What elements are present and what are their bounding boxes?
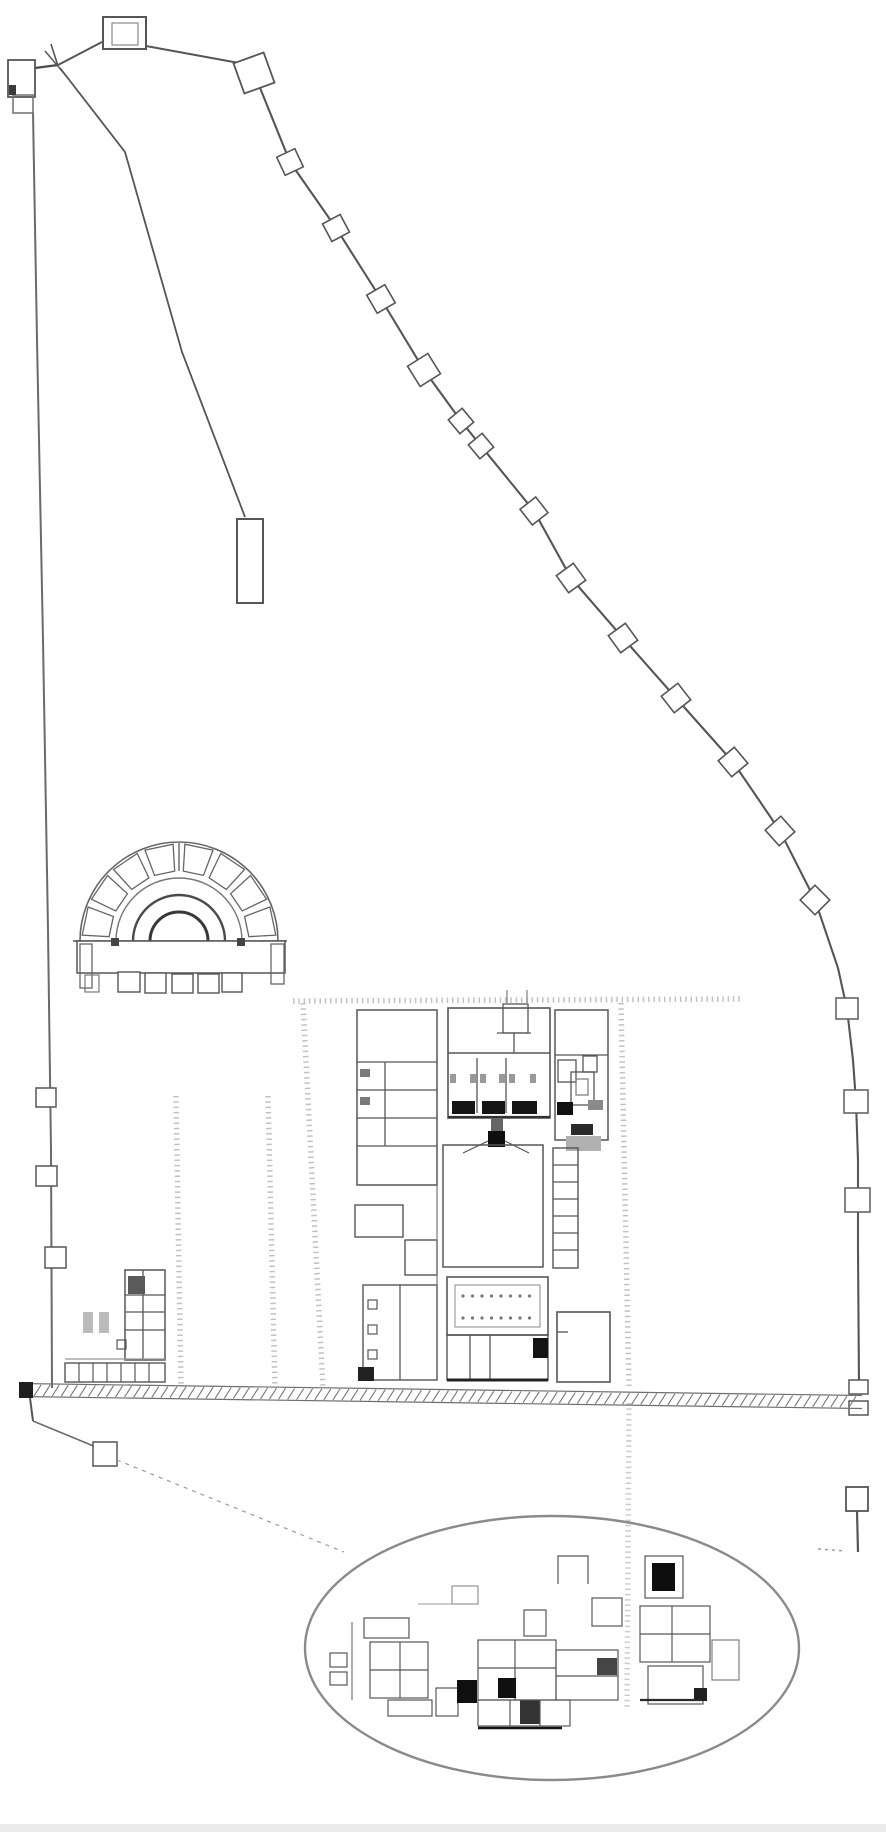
road-hatch-tick	[704, 1394, 711, 1405]
central-complex-shape	[405, 1240, 437, 1275]
central-complex-shape	[571, 1124, 593, 1135]
road-hatch-tick	[831, 1396, 838, 1407]
detail-inset-shape	[652, 1563, 675, 1591]
northeast-city-wall	[254, 73, 859, 1385]
theatre-radial-chambers	[91, 876, 127, 911]
city-wall-shape	[35, 65, 58, 68]
wall-towers-shape	[765, 816, 795, 846]
wall-towers-shape	[520, 497, 548, 525]
detail-inset-shape	[330, 1672, 347, 1685]
pool-dot	[461, 1316, 464, 1319]
detail-inset-shape	[597, 1658, 617, 1675]
central-complex-shape	[368, 1325, 377, 1334]
road-hatch-tick	[487, 1391, 494, 1402]
road-hatch-tick	[288, 1388, 295, 1399]
road-hatch-tick	[215, 1387, 222, 1398]
road-hatch-tick	[722, 1395, 729, 1406]
road-hatch-tick	[758, 1395, 765, 1406]
inner-wall	[60, 68, 263, 603]
north-south-street	[621, 1003, 629, 1388]
road-hatch-tick	[451, 1391, 458, 1402]
wall-towers-shape	[408, 354, 441, 387]
north-south-street-extension	[627, 1403, 629, 1710]
pool-dot	[499, 1294, 502, 1297]
theatre	[73, 842, 287, 993]
site-plan-svg	[0, 0, 886, 1835]
road-hatch-tick	[52, 1385, 59, 1396]
detail-inset-shape	[712, 1640, 739, 1680]
road-hatch-tick	[786, 1396, 793, 1407]
road-hatch-tick	[840, 1396, 847, 1407]
road-hatch-tick	[324, 1389, 331, 1400]
road-hatch-tick	[532, 1392, 539, 1403]
theatre-shape	[198, 974, 219, 993]
road-hatch-tick	[125, 1386, 132, 1397]
portico-row	[65, 1363, 165, 1382]
southeast-tower	[846, 1487, 868, 1511]
road-hatch-tick	[777, 1395, 784, 1406]
detail-inset	[305, 1516, 799, 1780]
central-complex-shape	[499, 1074, 505, 1083]
road-hatch-tick	[586, 1393, 593, 1404]
road-hatch-tick	[116, 1386, 123, 1397]
theatre-radial-chambers	[245, 907, 276, 937]
road-hatch-tick	[369, 1390, 376, 1401]
wall-towers-shape	[367, 285, 396, 314]
road-hatch-tick	[261, 1388, 268, 1399]
south-rooms	[447, 1335, 548, 1380]
detail-inset-shape	[364, 1618, 409, 1638]
road-hatch-tick	[34, 1385, 41, 1396]
wall-towers-shape	[448, 408, 473, 433]
city-wall-shape	[146, 46, 239, 63]
wall-towers-shape	[800, 885, 830, 915]
pool-hall	[447, 1277, 548, 1335]
pillar	[99, 1312, 109, 1333]
inner-diagonal-wall	[60, 68, 245, 517]
pool-dot	[499, 1316, 502, 1319]
pool-dot	[471, 1316, 474, 1319]
central-complex-shape	[505, 1141, 529, 1153]
central-complex-shape	[588, 1100, 603, 1110]
road-hatch-tick	[224, 1388, 231, 1399]
west-wall-tower	[36, 1088, 56, 1107]
west-city-wall	[33, 112, 52, 1388]
road-hatch-tick	[433, 1390, 440, 1401]
theatre-shape	[145, 973, 166, 993]
road-hatch-tick	[659, 1394, 666, 1405]
southwest-tower	[93, 1442, 117, 1466]
road-hatch-tick	[740, 1395, 747, 1406]
theatre-cavea-arc	[133, 895, 225, 941]
central-complex-shape	[355, 1205, 403, 1237]
pool-dot	[461, 1294, 464, 1297]
city-wall-shape	[30, 1398, 33, 1421]
theatre-radial-chambers	[82, 907, 113, 937]
road-hatch-tick	[197, 1387, 204, 1398]
theatre-shape	[118, 972, 140, 992]
road-hatch-tick	[170, 1387, 177, 1398]
road-hatch-tick	[804, 1396, 811, 1407]
doorway-black	[452, 1101, 475, 1114]
central-complex-shape	[360, 1097, 370, 1105]
central-complex	[355, 990, 610, 1382]
detail-inset-shape	[457, 1680, 477, 1703]
road-hatch-tick	[514, 1392, 521, 1403]
peristyle-courtyard	[443, 1145, 543, 1267]
doorway-black	[482, 1101, 505, 1114]
north-gate-tower	[103, 17, 146, 49]
detail-inset-shape	[330, 1653, 347, 1667]
theatre-orchestra	[150, 912, 208, 941]
city-wall-shape	[9, 85, 16, 95]
theatre-radial-chambers	[231, 876, 267, 911]
north-south-street	[303, 1003, 323, 1388]
scan-artifacts-shape	[0, 1824, 886, 1832]
central-complex-shape	[463, 1141, 488, 1153]
central-complex-shape	[557, 1102, 573, 1115]
paved-road-shape	[19, 1382, 33, 1398]
central-complex-shape	[368, 1350, 377, 1359]
central-complex-shape	[558, 1060, 576, 1082]
doorway-black	[512, 1101, 537, 1114]
road-hatch-tick	[496, 1391, 503, 1402]
paved-road-band	[20, 1384, 862, 1396]
road-hatch-tick	[768, 1395, 775, 1406]
road-hatch-tick	[306, 1389, 313, 1400]
road-hatch-tick	[333, 1389, 340, 1400]
road-hatch-tick	[161, 1387, 168, 1398]
central-complex-shape	[480, 1074, 486, 1083]
theatre-radial-chambers	[145, 844, 175, 875]
pool-dot	[471, 1294, 474, 1297]
road-hatch-tick	[315, 1389, 322, 1400]
road-hatch-tick	[677, 1394, 684, 1405]
road-hatch-tick	[188, 1387, 195, 1398]
central-complex-shape	[368, 1300, 377, 1309]
road-hatch-tick	[822, 1396, 829, 1407]
road-hatch-tick	[396, 1390, 403, 1401]
road-hatch-tick	[351, 1389, 358, 1400]
road-hatch-tick	[641, 1393, 648, 1404]
pool-dot	[518, 1316, 521, 1319]
west-wall-tower	[36, 1166, 57, 1186]
central-complex-shape	[583, 1056, 597, 1072]
road-hatch-tick	[297, 1389, 304, 1400]
central-complex-shape	[360, 1069, 370, 1077]
road-hatch-tick	[577, 1393, 584, 1404]
road-hatch-tick	[623, 1393, 630, 1404]
road-hatch-tick	[686, 1394, 693, 1405]
pool-dot	[509, 1316, 512, 1319]
road-hatch-tick	[478, 1391, 485, 1402]
central-complex-shape	[509, 1074, 515, 1083]
road-hatch-tick	[423, 1390, 430, 1401]
road-hatch-tick	[360, 1389, 367, 1400]
road-hatch-tick	[98, 1386, 105, 1397]
long-narrow-building	[237, 519, 263, 603]
city-wall-shape	[849, 1380, 868, 1394]
central-complex-shape	[530, 1074, 536, 1083]
road-hatch-tick	[270, 1388, 277, 1399]
city-wall-shape	[58, 42, 102, 65]
road-hatch-tick	[469, 1391, 476, 1402]
central-complex-shape	[450, 1074, 456, 1083]
road-hatch-tick	[134, 1386, 141, 1397]
road-hatch-tick	[632, 1393, 639, 1404]
road-hatch-tick	[559, 1392, 566, 1403]
east-west-street	[293, 999, 742, 1001]
detail-inset-shape	[520, 1700, 540, 1724]
wall-towers-shape	[277, 149, 304, 176]
corner-tower	[234, 53, 275, 94]
detail-inset-shape	[558, 1556, 588, 1584]
theatre-shape	[172, 974, 193, 993]
road-hatch-tick	[414, 1390, 421, 1401]
theatre-shape	[237, 938, 245, 946]
road-hatch-tick	[405, 1390, 412, 1401]
road-hatch-tick	[650, 1394, 657, 1405]
theatre-radial-chambers	[114, 853, 149, 889]
central-complex-shape	[358, 1367, 374, 1381]
central-complex-shape	[566, 1136, 601, 1151]
west-buildings	[65, 1270, 165, 1382]
road-hatch-tick	[550, 1392, 557, 1403]
theatre-shape	[111, 938, 119, 946]
road-hatch-tick	[749, 1395, 756, 1406]
road-hatch-tick	[595, 1393, 602, 1404]
road-hatch-tick	[70, 1385, 77, 1396]
west-wall-tower	[45, 1247, 66, 1268]
pool-dot	[480, 1294, 483, 1297]
road-hatch-tick	[79, 1385, 86, 1396]
detail-inset-shape	[592, 1598, 622, 1626]
road-hatch-tick	[88, 1386, 95, 1397]
road-hatch-tick	[442, 1391, 449, 1402]
road-hatch-tick	[107, 1386, 114, 1397]
pillar	[83, 1312, 93, 1333]
city-wall	[8, 17, 868, 1552]
inset-ellipse	[305, 1516, 799, 1780]
road-hatch-tick	[342, 1389, 349, 1400]
road-hatch-tick	[242, 1388, 249, 1399]
road-hatch-tick	[668, 1394, 675, 1405]
road-hatch-tick	[378, 1390, 385, 1401]
central-complex-shape	[455, 1285, 540, 1327]
road-hatch-tick	[387, 1390, 394, 1401]
pool-dot	[518, 1294, 521, 1297]
road-hatch-tick	[43, 1385, 50, 1396]
pool-dot	[528, 1294, 531, 1297]
theatre-shape	[222, 973, 242, 992]
scan-artifacts	[0, 1824, 886, 1832]
road-hatch-tick	[568, 1392, 575, 1403]
inset-connector-line	[117, 1460, 344, 1552]
pool-dot	[528, 1316, 531, 1319]
theatre-radial-chambers	[183, 844, 213, 875]
east-range	[555, 1010, 608, 1140]
road-hatch-tick	[61, 1385, 68, 1396]
road-hatch-tick	[143, 1386, 150, 1397]
wall-towers	[234, 53, 871, 1213]
pool-dot	[480, 1316, 483, 1319]
road-hatch-tick	[505, 1392, 512, 1403]
road-hatch-tick	[541, 1392, 548, 1403]
north-south-street	[176, 1096, 181, 1387]
wall-towers-shape	[468, 433, 493, 458]
wall-towers-shape	[844, 1090, 868, 1113]
road-hatch-tick	[152, 1386, 159, 1397]
detail-inset-shape	[524, 1610, 546, 1636]
detail-inset-shape	[478, 1640, 556, 1700]
pool-dot	[490, 1316, 493, 1319]
road-hatch-tick	[813, 1396, 820, 1407]
road-hatch-tick	[605, 1393, 612, 1404]
wall-towers-shape	[323, 215, 350, 242]
wall-towers-shape	[845, 1188, 870, 1212]
central-complex-shape	[533, 1338, 548, 1358]
wall-towers-shape	[836, 998, 858, 1019]
theatre-radial-chambers	[209, 853, 244, 889]
detail-inset-shape	[498, 1678, 516, 1698]
central-complex-shape	[491, 1118, 503, 1131]
north-south-street	[268, 1096, 275, 1387]
city-wall-shape	[857, 1511, 858, 1552]
theatre-stage	[77, 941, 285, 973]
road-hatch-tick	[460, 1391, 467, 1402]
road-hatch-tick	[731, 1395, 738, 1406]
road-hatch-tick	[523, 1392, 530, 1403]
site-plan	[0, 0, 886, 1835]
road-hatch-tick	[695, 1394, 702, 1405]
central-complex-shape	[576, 1079, 588, 1095]
city-wall-shape	[818, 1549, 846, 1551]
pool-dot	[509, 1294, 512, 1297]
detail-inset-shape	[388, 1700, 432, 1716]
road-hatch-tick	[179, 1387, 186, 1398]
road-hatch-tick	[614, 1393, 621, 1404]
road-hatch-tick	[251, 1388, 258, 1399]
west-buildings-shape	[128, 1276, 145, 1294]
road-hatch-tick	[795, 1396, 802, 1407]
southeast-annex	[557, 1312, 610, 1382]
detail-inset-shape	[452, 1586, 478, 1604]
detail-inset-shape	[436, 1688, 458, 1716]
road-hatch-tick	[206, 1387, 213, 1398]
road-hatch-tick	[233, 1388, 240, 1399]
central-complex-shape	[470, 1074, 476, 1083]
paved-road	[19, 1382, 862, 1409]
road-hatch-tick	[713, 1394, 720, 1405]
road-hatch-tick	[279, 1388, 286, 1399]
pool-dot	[490, 1294, 493, 1297]
